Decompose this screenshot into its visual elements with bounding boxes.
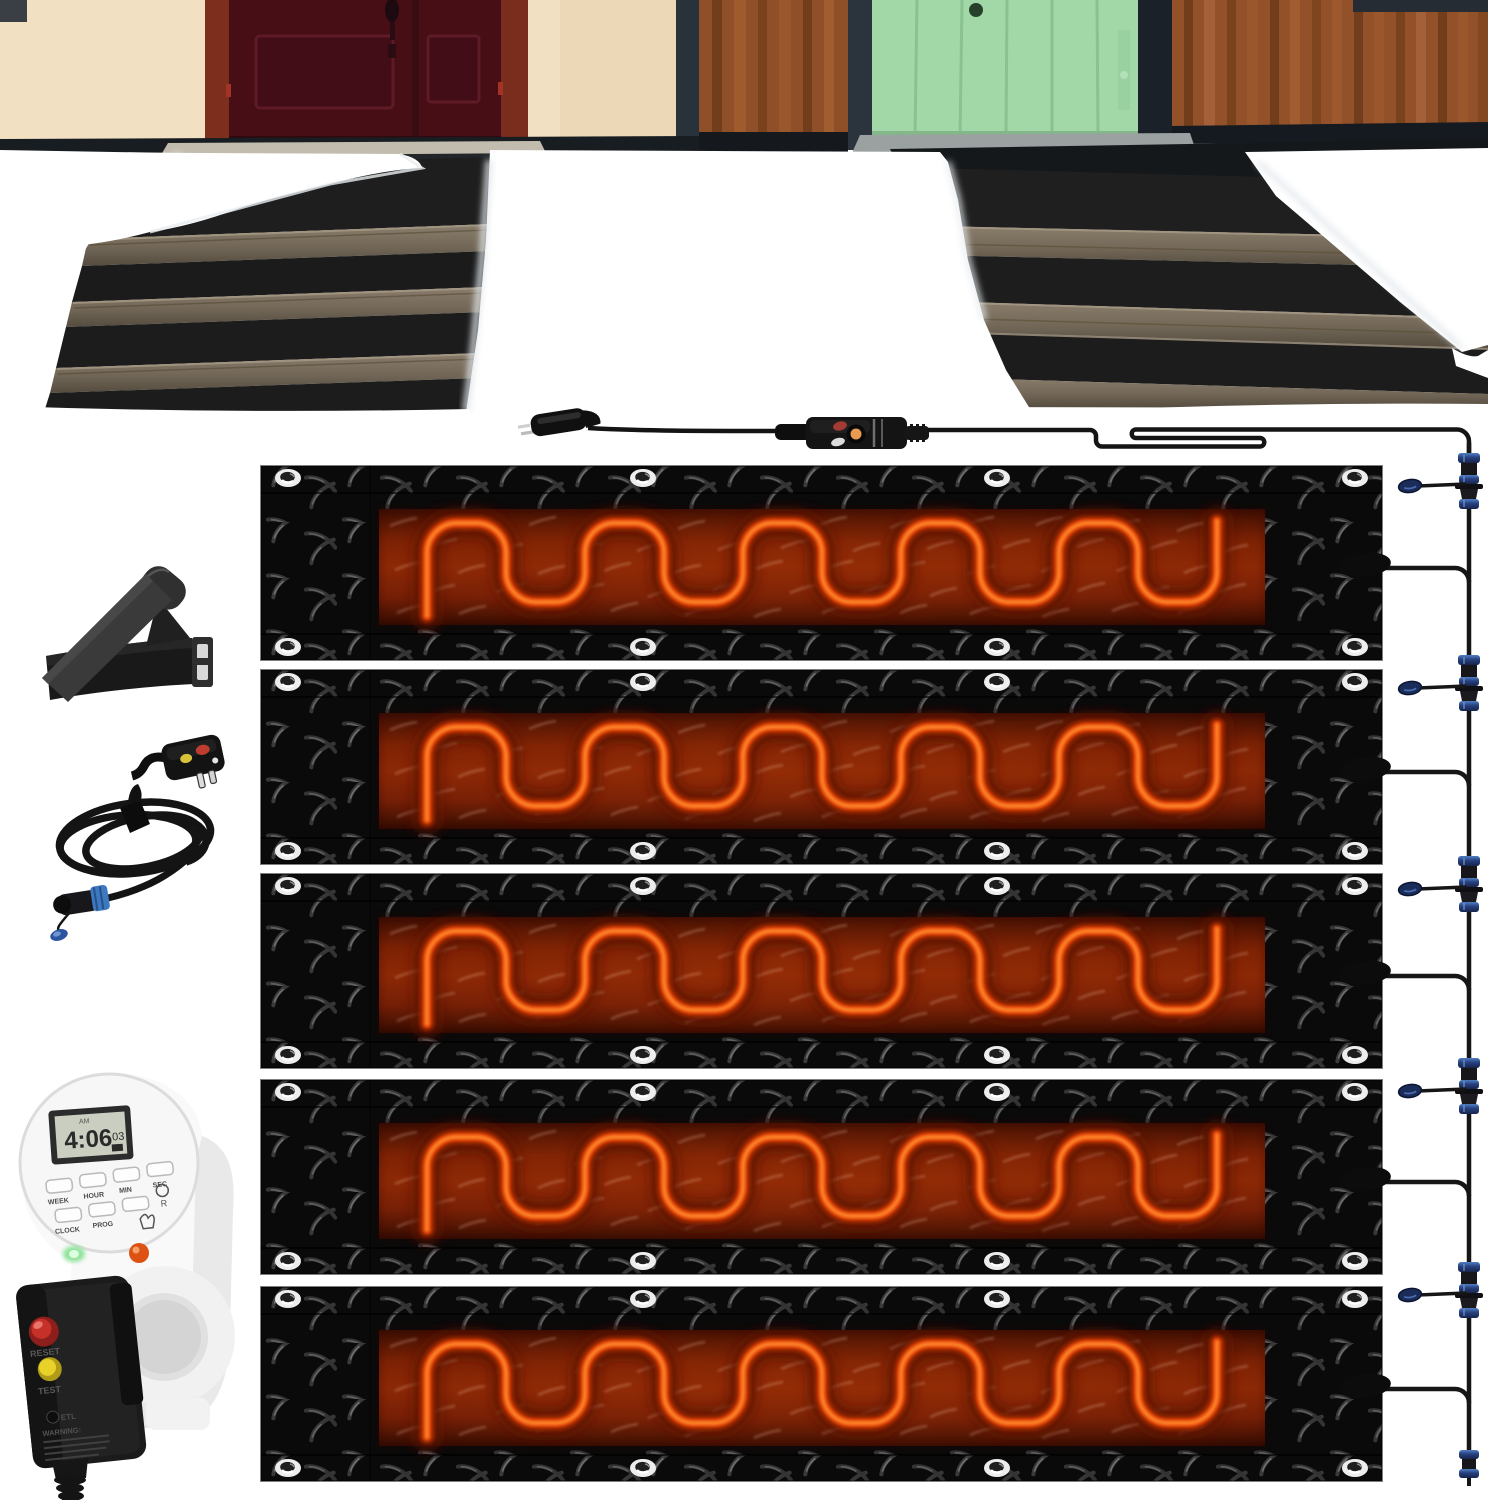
svg-text:4:06: 4:06 bbox=[63, 1124, 113, 1154]
svg-text:AM: AM bbox=[79, 1118, 90, 1126]
svg-text:03: 03 bbox=[112, 1131, 125, 1144]
svg-text:ETL: ETL bbox=[60, 1412, 76, 1423]
svg-text:MIN: MIN bbox=[119, 1187, 133, 1195]
